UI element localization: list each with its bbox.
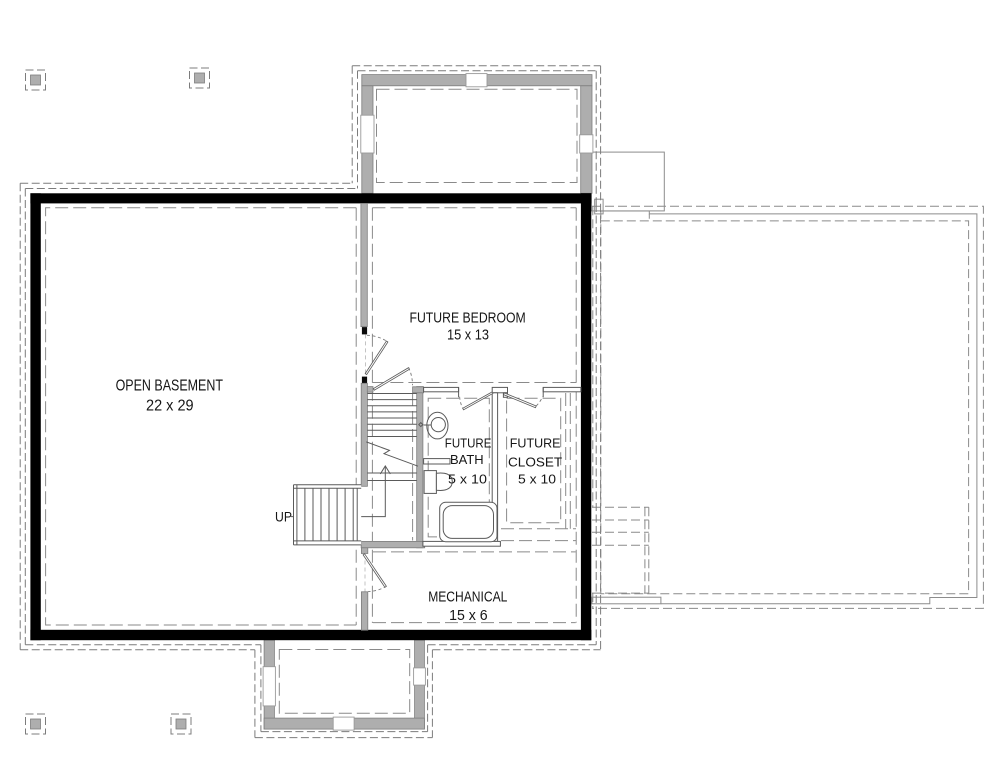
svg-text:MECHANICAL: MECHANICAL	[428, 590, 507, 606]
svg-text:15 x 6: 15 x 6	[449, 608, 488, 624]
svg-text:OPEN BASEMENT: OPEN BASEMENT	[116, 377, 224, 394]
svg-text:22 x 29: 22 x 29	[146, 397, 194, 414]
svg-text:BATH: BATH	[450, 453, 484, 467]
svg-text:UP: UP	[275, 510, 292, 525]
svg-text:FUTURE BEDROOM: FUTURE BEDROOM	[410, 310, 526, 327]
svg-text:FUTURE: FUTURE	[445, 436, 492, 450]
svg-text:5 x 10: 5 x 10	[448, 473, 487, 487]
svg-text:5 x 10: 5 x 10	[518, 473, 556, 487]
svg-text:CLOSET: CLOSET	[508, 456, 563, 470]
svg-text:15 x 13: 15 x 13	[447, 327, 489, 344]
svg-text:FUTURE: FUTURE	[510, 436, 561, 450]
